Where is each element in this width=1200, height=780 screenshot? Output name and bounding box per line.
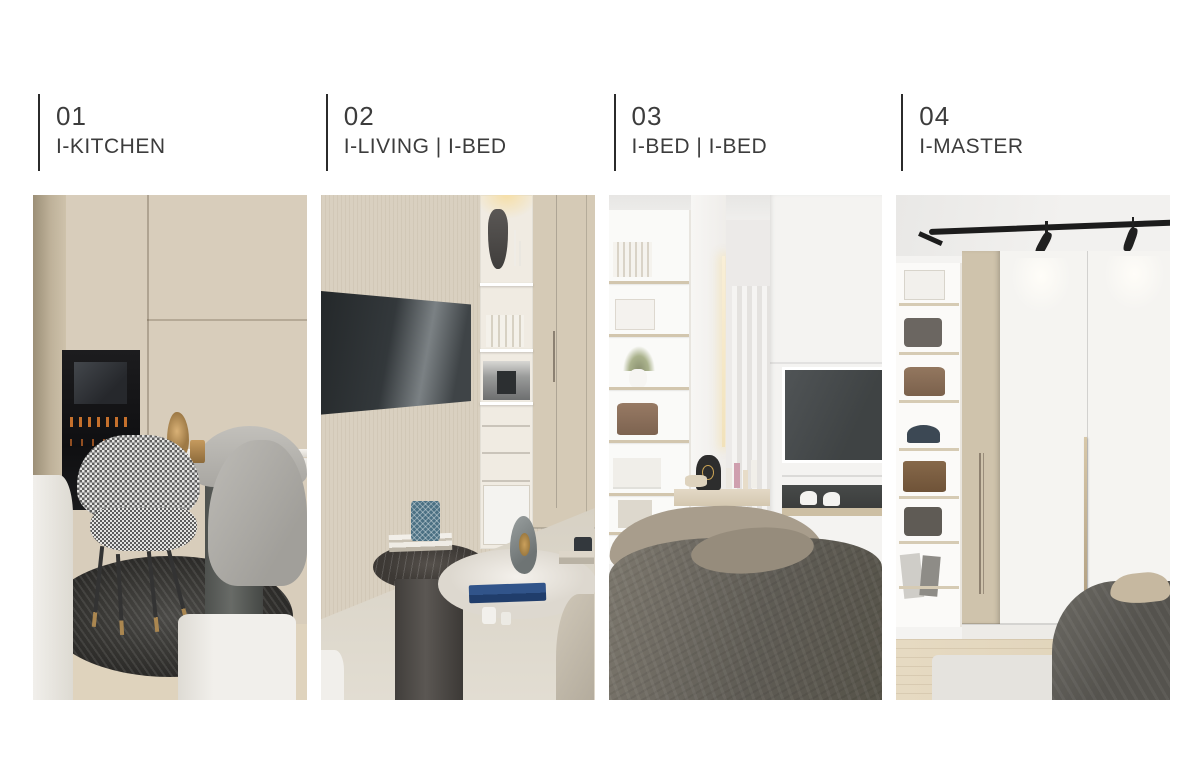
spotlight-glow [1011,258,1071,319]
section-bed-bed: 03 I-BED | I-BED [609,94,883,700]
cap [907,425,940,443]
wardrobe [533,195,595,528]
dark-vase [488,209,508,269]
briefcase [903,461,946,492]
wood-wardrobe-door [962,251,1000,625]
wardrobe-seam [556,195,557,508]
wood-door-handle [1084,437,1087,594]
living-bed-photo [321,195,595,700]
spotlight-glow [1104,256,1164,317]
wardrobe-handle [553,331,555,382]
section-master-header: 04 I-MASTER [901,94,1170,171]
shelf-board [899,586,959,589]
cabinet-seam [782,475,882,477]
drawer-line [482,480,530,482]
shelf-board [899,400,959,403]
sneaker [800,491,816,504]
shelf-board [899,303,959,306]
dark-storage-box [904,318,942,347]
vanity-top [674,489,770,506]
gold-cup [190,440,205,463]
shelf-board [609,387,689,390]
master-photo [896,195,1170,700]
section-label: I-BED | I-BED [632,135,883,159]
storage-box [615,299,655,331]
dark-storage-box [904,507,942,536]
stacked-books [559,551,595,564]
section-living-bed: 02 I-LIVING | I-BED [321,94,595,700]
shelf-board [480,349,533,352]
shelf-board [609,281,689,284]
book-row [486,315,524,347]
candle [514,230,517,265]
section-number: 01 [56,102,307,130]
book-row [613,242,651,277]
section-label: I-KITCHEN [56,135,307,159]
open-shelf-unit [896,263,962,627]
presentation-board: 01 I-KITCHEN [33,94,1170,700]
oven-display [70,417,132,427]
oven-window [74,362,127,404]
plant [623,346,655,371]
led-light-strip [722,256,726,448]
cosmetic-bottle [743,470,748,489]
shelf-board [899,496,959,499]
section-label: I-MASTER [919,135,1170,159]
coffee-machine-front [497,371,516,394]
section-number: 02 [344,102,595,130]
cabinet-seam [770,362,882,364]
shelf-board [480,283,533,286]
blue-patterned-vase [411,501,440,541]
wood-shelf-strip [782,508,882,516]
section-number: 03 [632,102,883,130]
section-bed-bed-header: 03 I-BED | I-BED [614,94,883,171]
section-kitchen-header: 01 I-KITCHEN [38,94,307,171]
section-label: I-LIVING | I-BED [344,135,595,159]
drawer-line [482,425,530,427]
candle [519,241,521,266]
section-number: 04 [919,102,1170,130]
wardrobe-seam [586,195,587,513]
drawer [613,458,661,490]
handbag [904,367,945,396]
door-seam [1087,251,1088,625]
tv-screen [782,367,882,463]
section-master: 04 I-MASTER [896,94,1170,700]
plant-vase [629,369,647,388]
shelf-board [609,440,689,443]
sneaker [823,492,839,505]
shelf-board [480,402,533,405]
cabinet-seam [147,195,149,448]
door-handle-groove [983,453,984,594]
coffee-machine [483,361,530,400]
tv-screen [321,291,472,415]
drawer-line [482,452,530,454]
section-living-bed-header: 02 I-LIVING | I-BED [326,94,595,171]
shelf-niche [480,195,533,549]
shelf-board [609,334,689,337]
white-armchair [33,475,73,700]
shelf-board [899,541,959,544]
white-bench [178,614,296,700]
kitchen-photo [33,195,307,700]
vase-pattern [411,501,440,541]
shopping-bag [919,555,941,596]
blue-books [468,583,545,604]
cosmetic-bottle [751,460,757,488]
section-kitchen: 01 I-KITCHEN [33,94,307,700]
white-storage-box [904,270,945,299]
cosmetic-bottle [726,468,731,488]
shelf-board [899,448,959,451]
cabinet-seam [147,319,307,321]
bed-bed-photo [609,195,883,700]
door-handle-groove [979,453,981,594]
shelf-board [899,352,959,355]
houndstooth-chair-seat [90,508,197,551]
cosmetic-tray [685,475,707,487]
cosmetic-bottle [734,463,739,488]
candle [482,607,496,624]
candle [501,612,511,625]
handbag [617,403,659,435]
sofa-corner [321,650,344,701]
